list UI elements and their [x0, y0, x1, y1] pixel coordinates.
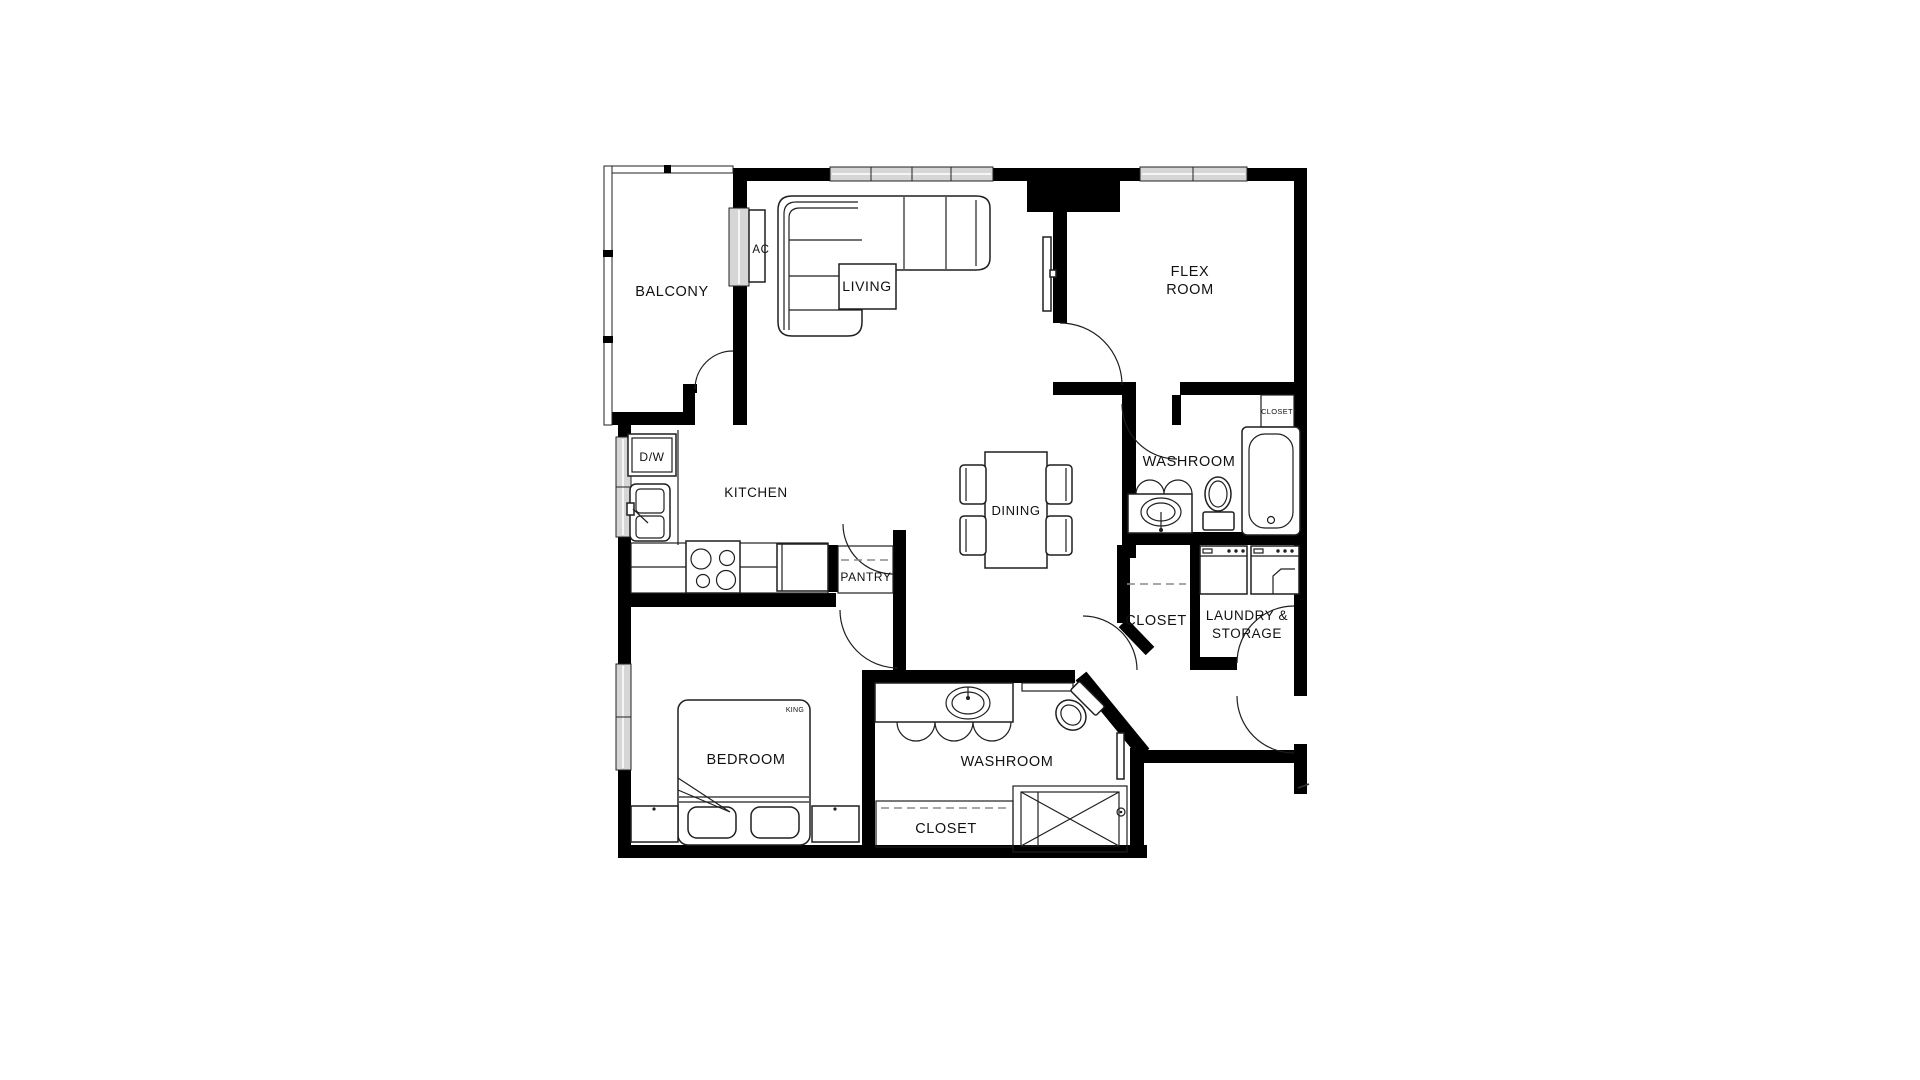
nightstand-left — [631, 806, 678, 842]
label-closet-bedroom: CLOSET — [915, 821, 977, 837]
flex-door-arc — [1060, 323, 1122, 385]
label-ac: AC — [752, 244, 769, 256]
flex-window — [1140, 167, 1247, 181]
kitchen-sink — [627, 484, 670, 541]
laundry-units — [1127, 546, 1299, 594]
stove — [686, 541, 740, 593]
vanity-lower — [875, 683, 1013, 741]
kitchen-fixtures — [627, 430, 893, 593]
nightstand-right — [812, 806, 859, 842]
label-flex-line2: ROOM — [1166, 282, 1214, 298]
label-kitchen: KITCHEN — [724, 485, 787, 500]
label-washroom-upper: WASHROOM — [1143, 454, 1236, 470]
floor-plan-page: BALCONY AC LIVING FLEX ROOM KITCHEN D/W … — [0, 0, 1920, 1080]
label-flex-line1: FLEX — [1171, 264, 1210, 280]
bedroom-window — [616, 664, 631, 770]
label-washroom-lower: WASHROOM — [961, 754, 1054, 770]
label-dishwasher: D/W — [639, 450, 664, 464]
fridge — [777, 544, 828, 591]
king-bed — [678, 700, 810, 845]
bedroom-door-arc — [840, 610, 898, 668]
label-closet-flex: CLOSET — [1261, 407, 1293, 416]
label-balcony: BALCONY — [635, 284, 709, 300]
vanity-upper — [1128, 480, 1192, 533]
label-pantry: PANTRY — [840, 570, 891, 584]
pantry-door-arc — [843, 524, 893, 574]
balcony-living-window — [729, 208, 749, 286]
bathtub — [1242, 427, 1300, 535]
shaft-block — [1027, 168, 1120, 212]
label-bed-size: KING — [786, 707, 804, 714]
label-laundry-line1: LAUNDRY & — [1206, 608, 1288, 623]
label-living: LIVING — [842, 278, 892, 294]
label-bedroom: BEDROOM — [706, 752, 785, 768]
balcony-door-arc — [695, 351, 733, 389]
label-dining: DINING — [991, 503, 1040, 518]
shower — [1013, 733, 1127, 852]
entry-door-arc — [1237, 696, 1294, 753]
floor-plan-drawing: BALCONY AC LIVING FLEX ROOM KITCHEN D/W … — [0, 0, 1920, 1080]
ledge — [1022, 683, 1073, 691]
label-laundry-line2: STORAGE — [1212, 626, 1282, 641]
toilet-upper — [1203, 477, 1234, 530]
washroom-upper-door-leaf — [1172, 395, 1181, 425]
shower-glass — [1117, 733, 1124, 779]
dryer — [1251, 546, 1299, 594]
label-closet-hall: CLOSET — [1125, 613, 1187, 629]
living-window — [830, 167, 993, 181]
washer — [1200, 546, 1247, 594]
